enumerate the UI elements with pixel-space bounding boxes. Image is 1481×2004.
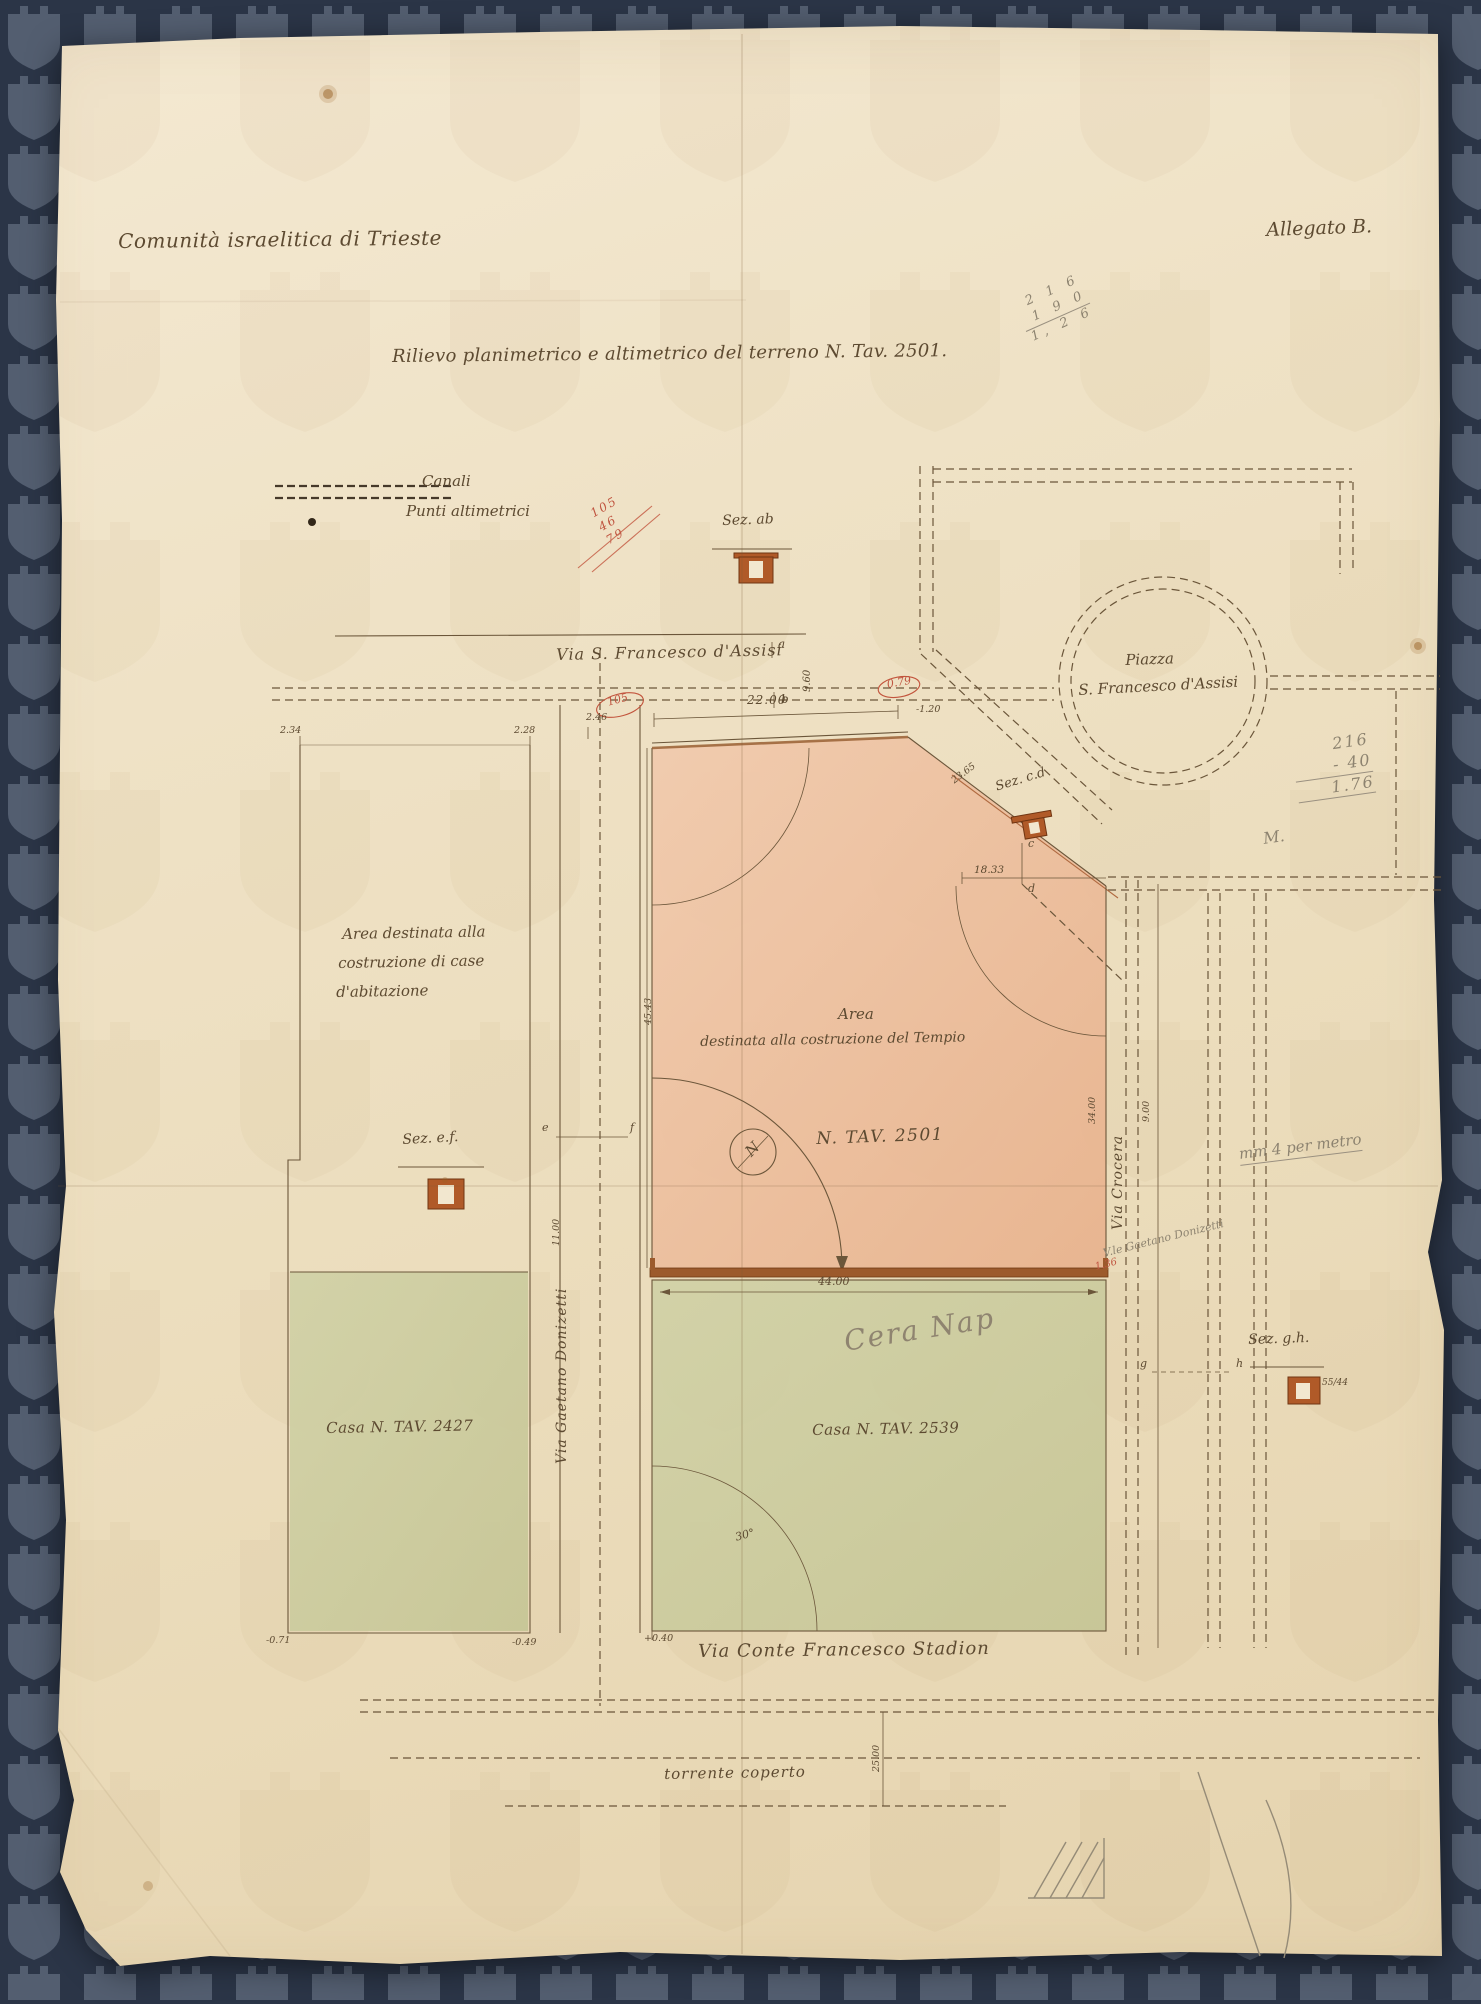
point-f-label: f — [630, 1122, 634, 1135]
piazza-label-1: Piazza — [1125, 650, 1174, 669]
dim-stadion-width: 25.00 — [872, 1745, 883, 1772]
dim-notch: 18.33 — [974, 864, 1004, 876]
area-case-line1: Area destinata alla — [342, 923, 486, 943]
plan-linework — [0, 0, 1481, 2000]
legend-canali-label: Canali — [422, 473, 471, 490]
point-a-label: a — [778, 638, 785, 652]
point-g-label: g — [1140, 1358, 1147, 1371]
area-tempio-line1: Area — [838, 1006, 874, 1023]
dim-tempio-right: 34.00 — [1088, 1097, 1099, 1124]
street-crocera-label: Via Crocera — [1110, 1135, 1126, 1230]
point-d-label: d — [1028, 883, 1035, 896]
section-symbol-ab — [712, 549, 792, 583]
area-case-line2: costruzione di case — [338, 952, 484, 972]
area-case-line3: d'abitazione — [336, 982, 429, 1001]
pencil-sketch — [1028, 1772, 1291, 1958]
dim-crocera-width: 9.00 — [1142, 1101, 1153, 1122]
dim-tempio-width: 22.00 — [747, 694, 786, 708]
street-stadion-label: Via Conte Francesco Stadion — [698, 1639, 990, 1663]
dim-bl2: -0.49 — [512, 1638, 536, 1649]
scanned-plan-page: Comunità israelitica di Trieste Allegato… — [0, 0, 1481, 2000]
allegato-label: Allegato B. — [1266, 216, 1372, 242]
street-stadion-lines — [360, 1700, 1434, 1806]
dim-234: 2.34 — [280, 726, 301, 737]
casa2427-label: Casa N. TAV. 2427 — [326, 1417, 474, 1437]
temple-wall-band — [650, 1268, 1108, 1277]
dim-bl1: -0.71 — [266, 1636, 290, 1647]
legend-altimetric-dot — [308, 518, 316, 526]
section-symbol-gh — [1250, 1367, 1324, 1404]
street-right-corridor — [1208, 893, 1266, 1648]
torrente-label: torrente coperto — [664, 1764, 806, 1784]
section-ef-label: Sez. e.f. — [402, 1129, 459, 1148]
street-donizetti-label: Via Gaetano Donizetti — [554, 1288, 570, 1464]
legend-punti-label: Punti altimetrici — [406, 503, 530, 520]
dim-tempio-left: 45.43 — [644, 998, 655, 1025]
dim-228: 2.28 — [514, 726, 535, 737]
pencil-m-prefix: M. — [1262, 827, 1286, 848]
point-e-label: e — [542, 1122, 549, 1135]
dim-wall: 44.00 — [818, 1276, 850, 1289]
parcel-casa2427-fill — [290, 1272, 528, 1631]
point-c-label: c — [1028, 838, 1034, 851]
section-gh-fraction: 55/44 — [1322, 1378, 1348, 1388]
red-pencil-marks — [578, 506, 921, 722]
dim-assisi-height: 9.60 — [802, 670, 814, 692]
pencil-calc-right: 216 - 40 1.76 — [1290, 729, 1376, 804]
casa2539-label: Casa N. TAV. 2539 — [812, 1419, 960, 1439]
street-donizetti-lines — [556, 650, 640, 1706]
section-gh-label: Sez. g.h. — [1248, 1330, 1310, 1348]
dim-donizetti-width: 11.00 — [552, 1219, 563, 1246]
dim-neg-120: -1.20 — [916, 705, 940, 716]
dim-bl3: +0.40 — [644, 1634, 673, 1645]
street-crocera-lines — [1126, 880, 1232, 1656]
section-symbol-ef — [398, 1167, 484, 1209]
org-title: Comunità israelitica di Trieste — [118, 227, 442, 253]
dim-246: 2.46 — [586, 713, 607, 724]
section-ab-label: Sez. ab — [722, 511, 774, 529]
point-h-label: h — [1236, 1358, 1243, 1371]
